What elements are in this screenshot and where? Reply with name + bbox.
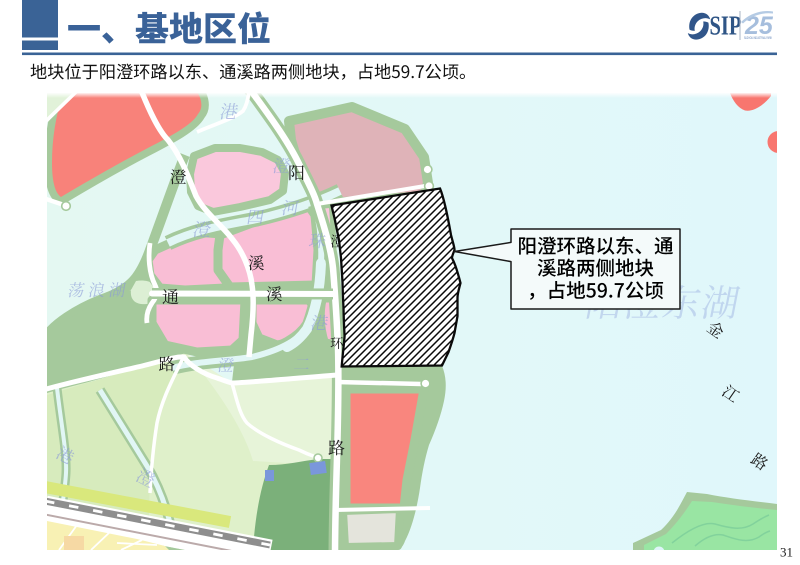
svg-text:SIP: SIP <box>710 12 742 41</box>
svg-text:SUZHOU INDUSTRIAL PARK: SUZHOU INDUSTRIAL PARK <box>744 36 772 40</box>
svg-text:31: 31 <box>780 545 793 560</box>
